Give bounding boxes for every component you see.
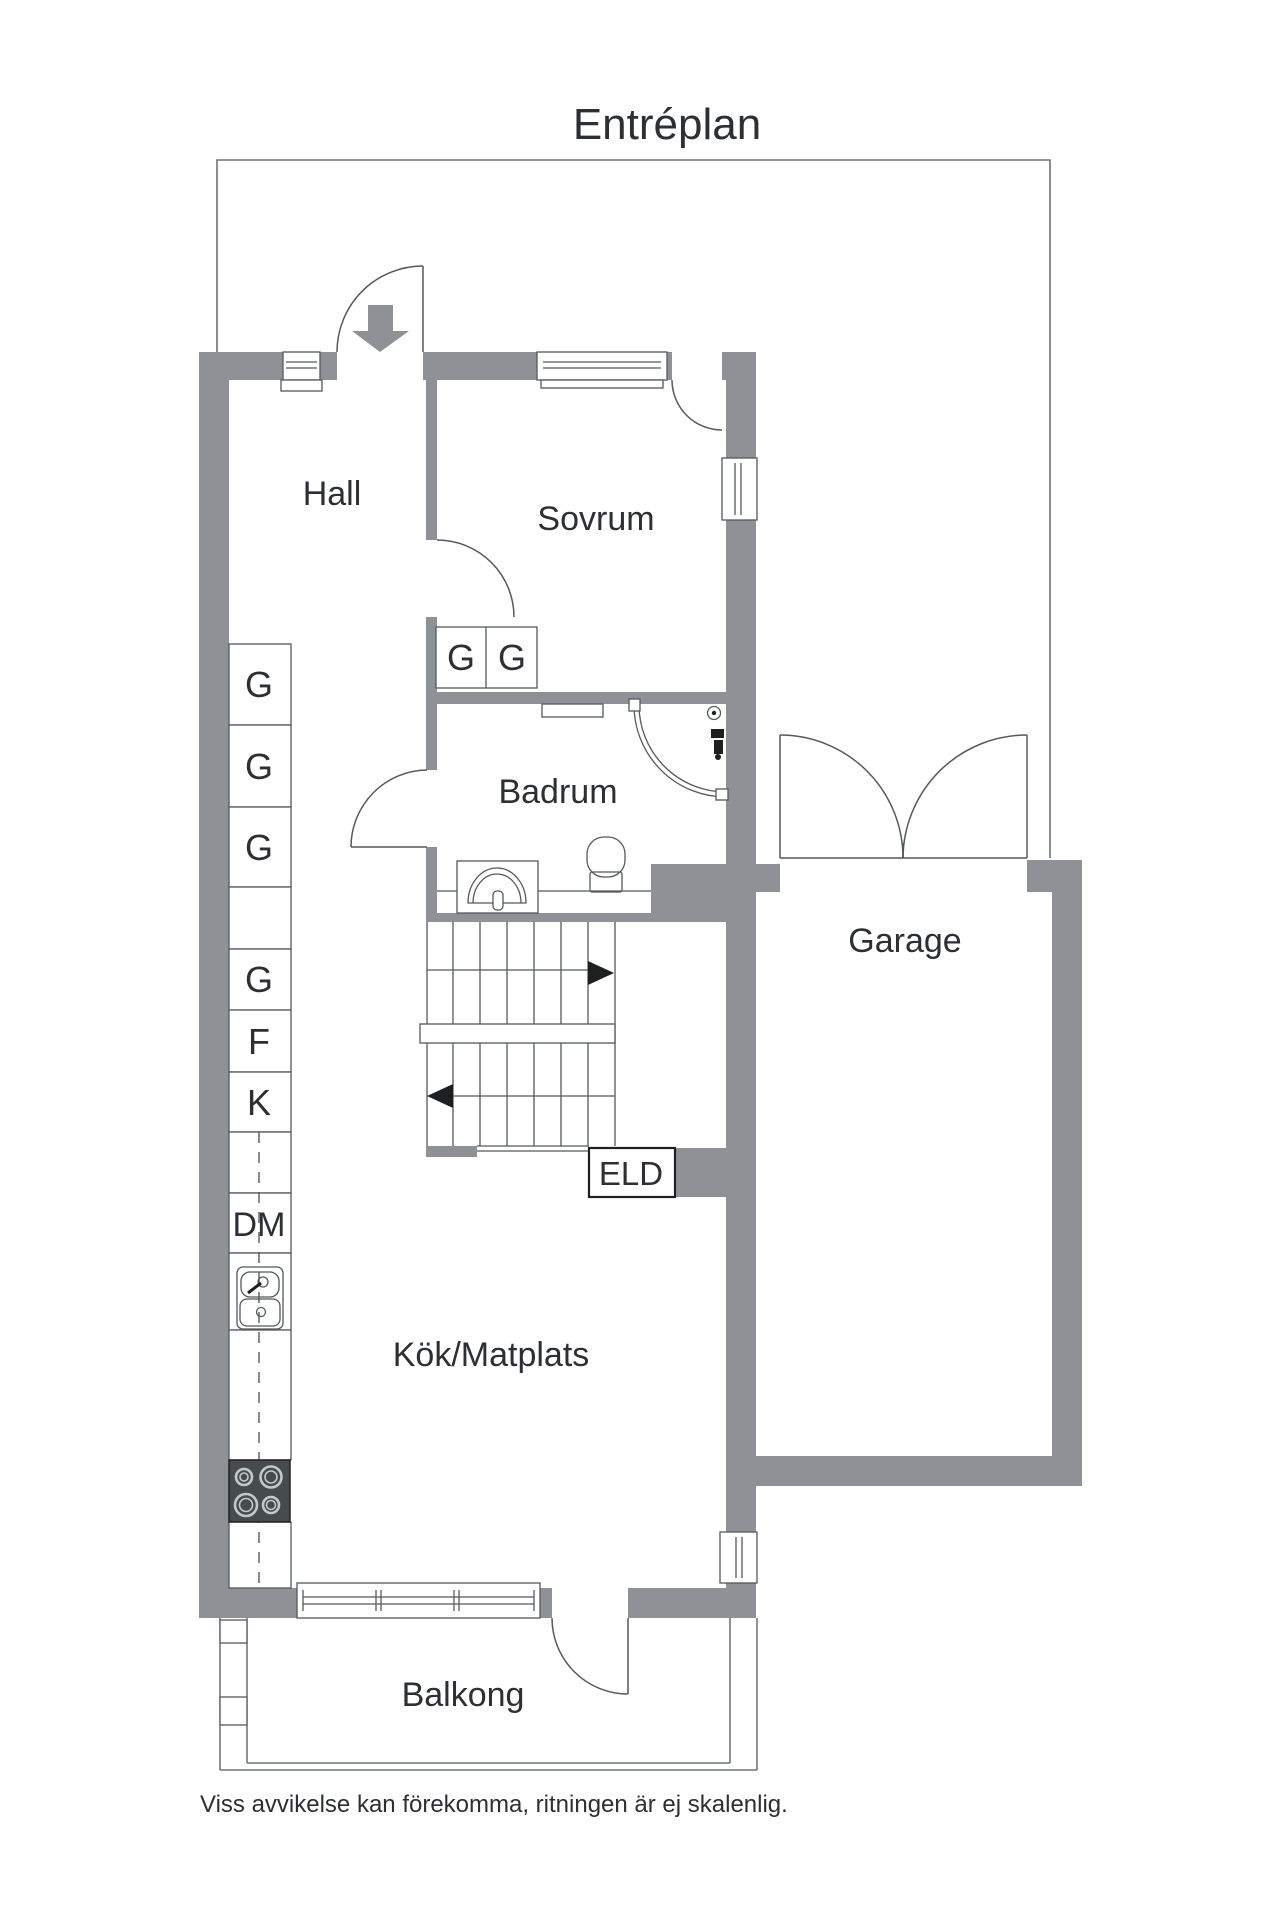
kitchen-closet-column: G G G G F K DM [229,644,291,1588]
windows [281,352,757,1618]
sovrum-corner-door [672,380,722,430]
room-label-sovrum: Sovrum [537,500,654,538]
closet-label-g1: G [245,664,273,705]
wall-top-mid2 [423,352,537,380]
wall-right-bottom-corner [726,1583,756,1618]
eld-label: ELD [599,1155,663,1192]
room-label-balkong: Balkong [402,1676,525,1714]
room-label-hall: Hall [303,475,362,513]
wall-badrum-west-lower [426,847,437,922]
closet-label-f: F [248,1021,270,1062]
sovrum-side-window [722,458,757,520]
bathroom-sink-icon [457,861,538,913]
balkong-door [552,1618,628,1694]
wall-top-sliver [667,352,672,380]
wall-chimney-bump [675,1148,726,1197]
closet-box [229,1132,291,1193]
wall-right-upper [726,380,756,458]
balcony-rail-detail [220,1697,247,1725]
wall-top-right-corner [722,352,756,380]
wall-bottom-stub [540,1588,552,1618]
wall-stairs-bottom-stub [426,1146,477,1157]
garage-doors [780,735,1027,858]
toilet-icon [587,837,625,892]
wall-hall-sovrum-upper [426,380,437,540]
wall-top-left [199,352,283,380]
wall-right-mid [726,520,756,864]
footer-disclaimer: Viss avvikelse kan förekomma, ritningen … [200,1791,788,1818]
room-label-kok: Kök/Matplats [393,1336,590,1374]
wardrobe-label: G [498,637,526,678]
wall-garage-right [1052,892,1082,1486]
closet-label-g3: G [245,827,273,868]
stairs-up-arrow-icon [588,961,614,985]
wall-bottom-left [199,1588,297,1618]
closet-label-k: K [247,1082,271,1123]
wall-garage-bottom [756,1456,1082,1486]
wall-garage-right-stub [1027,860,1082,892]
stairs [420,922,615,1151]
counter-segment [229,1330,291,1460]
balcony-rail-detail [220,1620,247,1643]
room-label-garage: Garage [848,922,961,960]
wall-bottom-right [628,1588,726,1618]
eld-fireplace: ELD [589,1148,675,1197]
floor-plan-page: { "title": "Entréplan", "rooms": { "hall… [0,0,1280,1920]
wall-badrum-north [437,692,726,704]
counter-segment [229,1522,291,1588]
sovrum-wardrobes: G G [436,627,537,688]
hall-window [281,352,322,391]
stairs-rail [420,1024,615,1043]
wall-left [199,380,229,1618]
closet-box [229,887,291,949]
closet-box [229,1253,291,1330]
badrum-door [351,770,427,847]
wardrobe-label: G [447,637,475,678]
kok-side-window [720,1532,757,1583]
floor-plan: Entréplan [0,0,1280,1920]
walls [199,352,1082,1618]
wall-right-kok [726,892,756,1532]
stove-icon [229,1460,290,1522]
wall-top-mid1 [320,352,337,380]
stairs-down-arrow-icon [427,1084,453,1108]
shower-icon [629,699,728,800]
closet-label-dm: DM [233,1206,286,1244]
wall-garage-jog [651,864,780,892]
wall-stairs-top [426,913,651,922]
closet-label-g4: G [245,959,273,1000]
page-title: Entréplan [573,100,761,149]
bathroom-niche [542,704,603,717]
sovrum-window [537,352,667,388]
sovrum-door [437,540,514,617]
room-labels: Hall Sovrum Badrum Garage Kök/Matplats B… [303,475,962,1714]
closet-label-g2: G [245,746,273,787]
entry-arrow-icon [352,305,409,352]
room-label-badrum: Badrum [498,773,617,811]
kok-window [297,1583,540,1618]
